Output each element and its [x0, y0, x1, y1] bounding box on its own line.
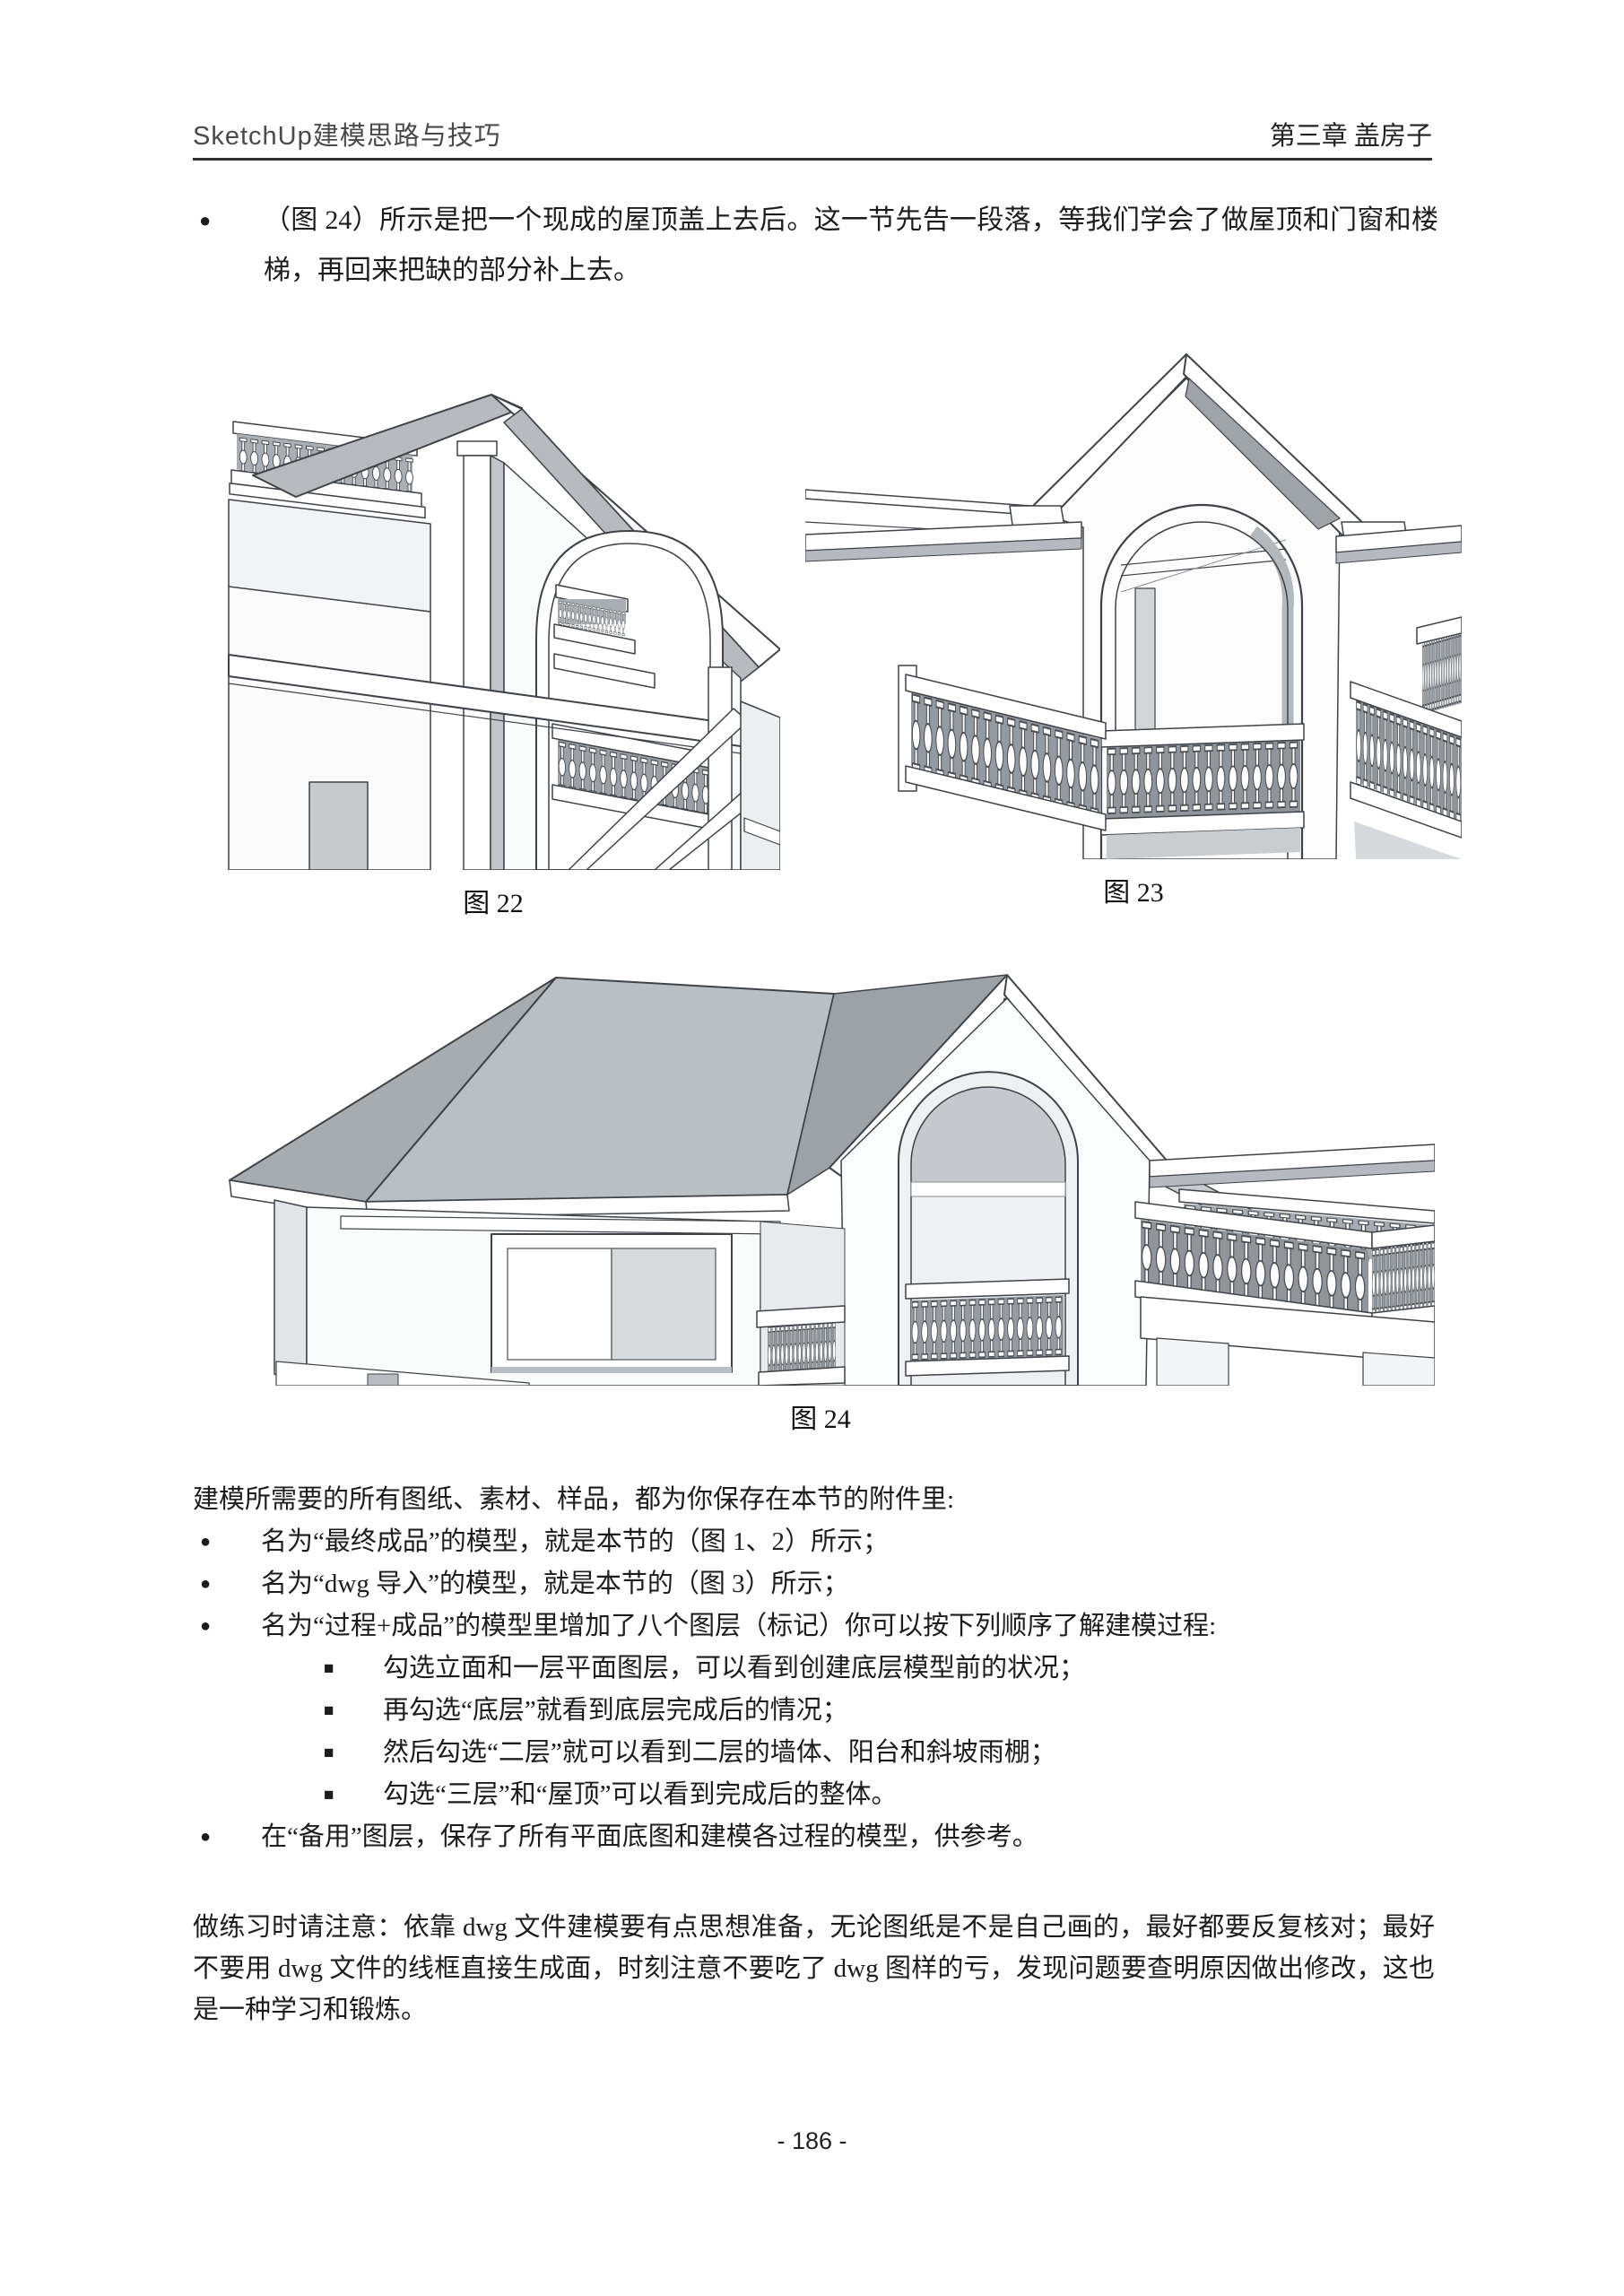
list-item: ● 名为“dwg 导入”的模型，就是本节的（图 3）所示； — [193, 1563, 1435, 1605]
note-paragraph: 做练习时请注意：依靠 dwg 文件建模要有点思想准备，无论图纸是不是自己画的，最… — [193, 1907, 1435, 2031]
page-header: SketchUp建模思路与技巧 第三章 盖房子 — [193, 115, 1432, 161]
figure-22-caption: 图 22 — [206, 881, 780, 920]
list-item-text: 勾选“三层”和“屋顶”可以看到完成后的整体。 — [383, 1774, 1435, 1816]
attachments-intro: 建模所需要的所有图纸、素材、样品，都为你保存在本节的附件里: — [193, 1478, 1435, 1521]
list-item: ● 名为“最终成品”的模型，就是本节的（图 1、2）所示； — [193, 1521, 1435, 1563]
intro-text: （图 24）所示是把一个现成的屋顶盖上去后。这一节先告一段落，等我们学会了做屋顶… — [264, 196, 1438, 296]
bullet-marker: ● — [199, 196, 264, 296]
book-page: SketchUp建模思路与技巧 第三章 盖房子 ● （图 24）所示是把一个现成… — [0, 0, 1624, 2296]
figure-24: 图 24 — [206, 969, 1435, 1436]
page-number: - 186 - — [0, 2127, 1624, 2155]
figure-23: 图 23 — [805, 323, 1462, 909]
bullet-marker: ● — [200, 1816, 261, 1858]
list-item: ● 在“备用”图层，保存了所有平面底图和建模各过程的模型，供参考。 — [193, 1816, 1435, 1858]
list-item-text: 名为“dwg 导入”的模型，就是本节的（图 3）所示； — [261, 1563, 1435, 1605]
list-subitem: ■ 勾选“三层”和“屋顶”可以看到完成后的整体。 — [193, 1774, 1435, 1816]
list-item: ● 名为“过程+成品”的模型里增加了八个图层（标记）你可以按下列顺序了解建模过程… — [193, 1605, 1435, 1648]
figure-23-drawing — [805, 323, 1462, 859]
list-item-text: 名为“过程+成品”的模型里增加了八个图层（标记）你可以按下列顺序了解建模过程: — [261, 1605, 1435, 1648]
list-item-text: 名为“最终成品”的模型，就是本节的（图 1、2）所示； — [261, 1521, 1435, 1563]
figure-24-caption: 图 24 — [206, 1396, 1435, 1436]
figure-23-caption: 图 23 — [805, 870, 1462, 909]
square-marker: ■ — [324, 1774, 383, 1816]
list-item-text: 在“备用”图层，保存了所有平面底图和建模各过程的模型，供参考。 — [261, 1816, 1435, 1858]
intro-paragraph: ● （图 24）所示是把一个现成的屋顶盖上去后。这一节先告一段落，等我们学会了做… — [199, 196, 1438, 296]
list-item-text: 再勾选“底层”就看到底层完成后的情况； — [383, 1690, 1435, 1732]
bullet-marker: ● — [200, 1521, 261, 1563]
bullet-marker: ● — [200, 1605, 261, 1648]
square-marker: ■ — [324, 1648, 383, 1690]
square-marker: ■ — [324, 1690, 383, 1732]
list-subitem: ■ 勾选立面和一层平面图层，可以看到创建底层模型前的状况； — [193, 1648, 1435, 1690]
attachments-section: 建模所需要的所有图纸、素材、样品，都为你保存在本节的附件里: ● 名为“最终成品… — [193, 1478, 1435, 1858]
list-subitem: ■ 然后勾选“二层”就可以看到二层的墙体、阳台和斜坡雨棚； — [193, 1732, 1435, 1774]
figure-24-drawing — [206, 969, 1435, 1386]
book-title: SketchUp建模思路与技巧 — [193, 115, 501, 152]
square-marker: ■ — [324, 1732, 383, 1774]
list-item-text: 勾选立面和一层平面图层，可以看到创建底层模型前的状况； — [383, 1648, 1435, 1690]
chapter-title: 第三章 盖房子 — [1270, 115, 1432, 152]
list-item-text: 然后勾选“二层”就可以看到二层的墙体、阳台和斜坡雨棚； — [383, 1732, 1435, 1774]
figure-22: 图 22 — [206, 316, 780, 920]
list-subitem: ■ 再勾选“底层”就看到底层完成后的情况； — [193, 1690, 1435, 1732]
bullet-marker: ● — [200, 1563, 261, 1605]
figure-22-drawing — [206, 316, 780, 870]
